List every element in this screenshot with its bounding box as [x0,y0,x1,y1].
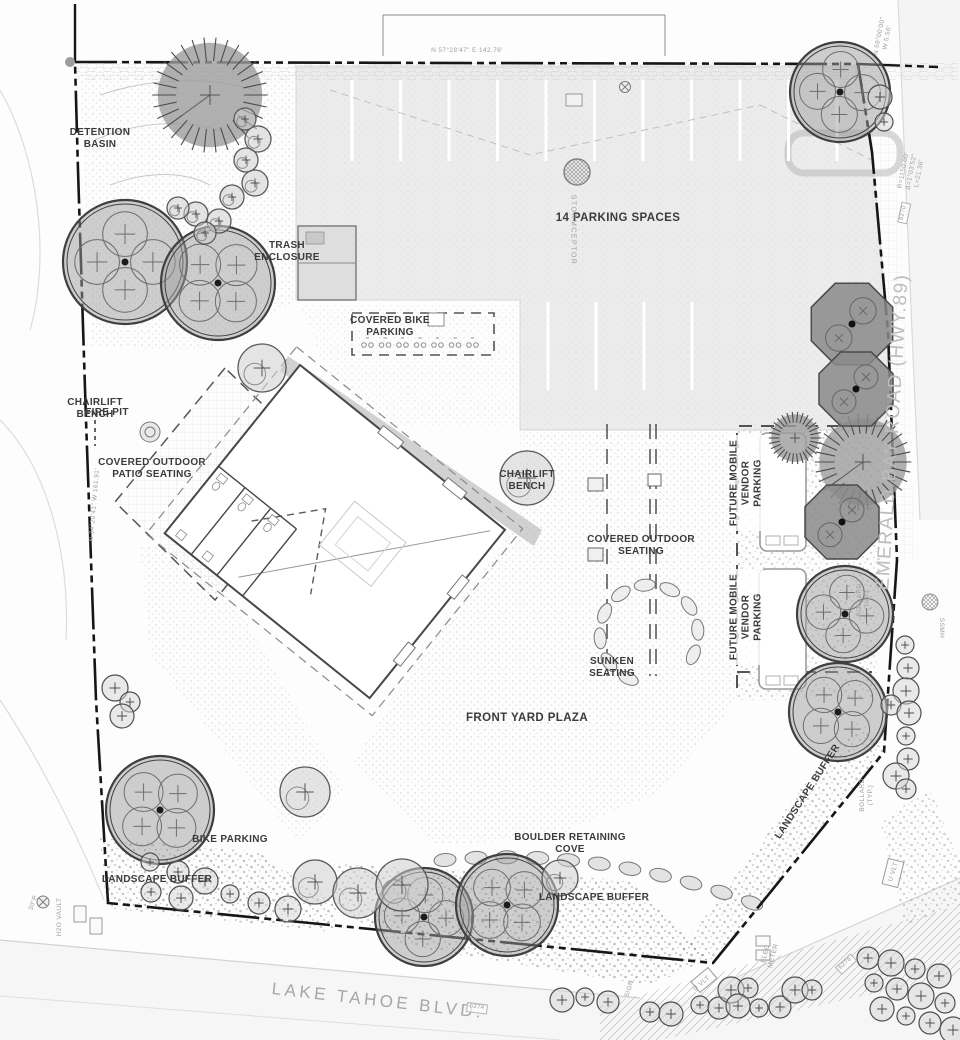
boundary-corner-marker [65,57,75,67]
label-trash-enclosure: TRASH ENCLOSURE [239,240,335,264]
shrub [857,947,879,969]
shrub [878,950,904,976]
shrub [141,853,159,871]
shrub [275,896,301,922]
sewer-manhole [922,594,938,610]
shrub [897,657,919,679]
label-covered-bike-parking: COVERED BIKE PARKING [340,315,440,339]
label-chairlift-bench-center: CHAIRLIFT BENCH [488,469,566,493]
shrub [897,701,921,725]
small-tree [280,767,330,817]
small-tree [167,197,189,219]
small-tree [542,860,578,896]
small-tree [242,170,268,196]
catch-basin [566,94,582,106]
shrub [935,993,955,1013]
annotation-stormceptor: STORMCEPTOR [568,195,577,266]
oak-tree [805,485,879,559]
shrub [750,999,768,1017]
label-bike-parking: BIKE PARKING [192,834,268,846]
label-covered-patio-seating: COVERED OUTDOOR PATIO SEATING [91,457,213,481]
small-tree [333,868,383,918]
site-plan: DETENTION BASIN TRASH ENCLOSURE FIRE PIT… [0,0,960,1040]
label-detention-basin: DETENTION BASIN [62,127,138,151]
shrub [691,996,709,1014]
oak-tree [819,352,893,426]
shrub [896,636,914,654]
shrub [905,959,925,979]
shrub [896,779,916,799]
fire-pit-symbol [140,422,160,442]
shrub [897,727,915,745]
shrub [221,885,239,903]
label-sunken-seating: SUNKEN SEATING [579,656,645,680]
label-landscape-buffer-s: LANDSCAPE BUFFER [539,892,649,904]
shrub [875,113,893,131]
small-tree [234,108,256,130]
label-front-yard-plaza: FRONT YARD PLAZA [466,712,588,726]
small-tree [238,344,286,392]
shrub [726,994,750,1018]
shrub [886,978,908,1000]
shrub [248,892,270,914]
shrub [802,980,822,1000]
deciduous-tree [456,854,558,956]
shrub [550,988,574,1012]
small-tree [234,148,258,172]
shrub [865,974,883,992]
shrub [927,964,951,988]
shrub [908,983,934,1009]
annotation-ssmh: SSMH [937,618,945,638]
shrub [870,997,894,1021]
shrub [919,1012,941,1034]
annotation-bollard-2: BOLLARD (TYP.) [859,773,875,817]
shrub [597,991,619,1013]
small-tree [194,222,216,244]
label-landscape-buffer-sw: LANDSCAPE BUFFER [102,874,212,886]
shrub [576,988,594,1006]
annotation-bearing-north: N 57°28'47" E 142.76' [431,47,503,55]
shrub [640,1002,660,1022]
label-future-vendor-parking-2: FUTURE MOBILE VENDOR PARKING [728,569,763,665]
label-chairlift-bench-west: CHAIRLIFT BENCH [56,397,134,421]
annotation-bollard-1: BOLLARD (TYP.) [856,578,872,622]
label-boulder-retaining-cove: BOULDER RETAINING COVE [504,832,636,856]
small-tree [376,859,428,911]
stormceptor-unit [564,159,590,185]
deciduous-tree [106,756,214,864]
shrub [868,85,892,109]
dimension-bracket [383,15,665,56]
shrub [659,1002,683,1026]
small-tree [220,185,244,209]
label-future-vendor-parking-1: FUTURE MOBILE VENDOR PARKING [728,435,763,531]
label-covered-outdoor-seating: COVERED OUTDOOR SEATING [578,534,704,558]
shrub [897,1007,915,1025]
annotation-h2o-vault: H2O VAULT [56,897,64,937]
shrub [169,886,193,910]
shrub [110,704,134,728]
small-tree [293,860,337,904]
